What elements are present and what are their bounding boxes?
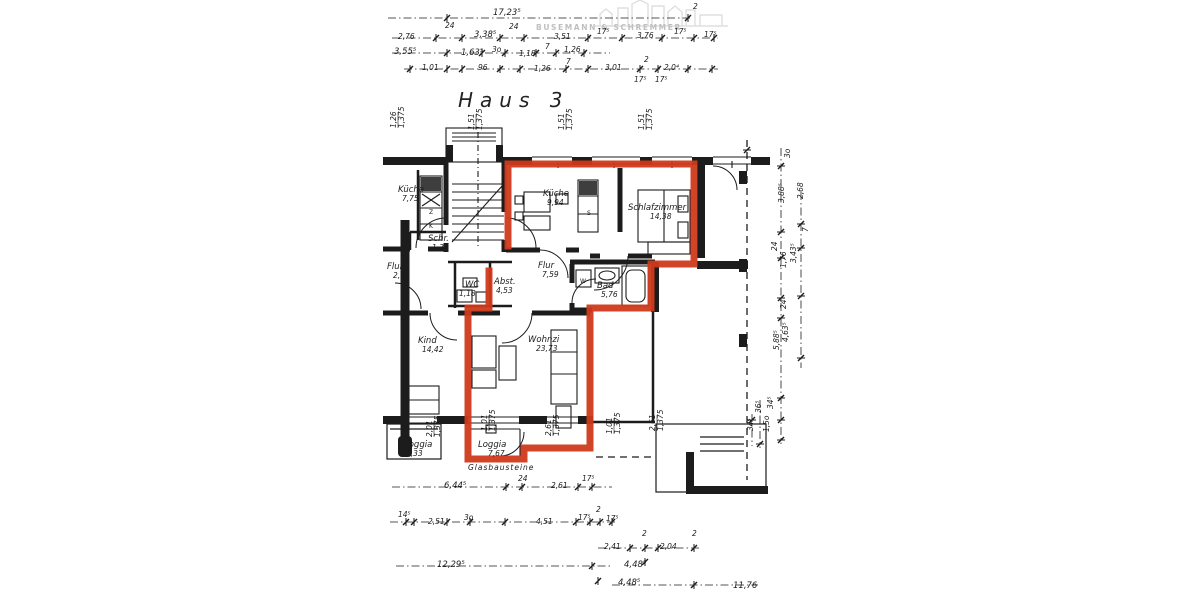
dim-label: 11,76: [733, 581, 758, 591]
dim-label: 4,48⁵: [624, 560, 647, 570]
dim-label: 5,88⁵: [772, 330, 781, 350]
dimensions-windows: 1,261,3751,511,3751,511,3751,511,3752,01…: [389, 106, 665, 437]
room-area-label: 14,38: [650, 212, 672, 221]
dim-label: 34⁵: [766, 396, 775, 409]
bedroom-fixtures: [638, 190, 690, 254]
room-area-label: 14,42: [422, 345, 444, 354]
dim-label: 4,63⁵: [781, 322, 790, 342]
window-dim-pair: 1,511,375: [637, 108, 654, 130]
dim-tick: [459, 65, 465, 73]
dim-label: 2,51: [428, 517, 445, 526]
dim-label: 14⁵: [398, 510, 411, 519]
dim-label: 6,44⁵: [444, 481, 467, 491]
room-area-label: 7,67: [488, 449, 505, 458]
floor-plan-page: BUSEMANN & SCHREMMER: [0, 0, 1200, 600]
plan-title: Haus 3: [458, 88, 569, 112]
handwritten-note: Glasbausteine: [468, 463, 534, 472]
dim-label: 17,23⁵: [493, 8, 521, 18]
dim-label: 1,26: [534, 64, 551, 73]
dim-tick: [777, 437, 785, 443]
room-area-label: 9,94: [547, 198, 564, 207]
dim-label: 7: [801, 227, 810, 232]
dim-label: 17⁵: [674, 27, 687, 36]
window-dim-pair: 2,011,375: [425, 415, 442, 437]
dimension-chain-lines: [388, 18, 801, 585]
dim-label: 24: [779, 299, 788, 309]
dim-label: 7: [566, 57, 571, 66]
dim-label: 1,18: [519, 49, 536, 58]
dim-tick: [619, 34, 625, 42]
dim-label: 2,76: [398, 32, 415, 41]
dim-label: 3o: [783, 148, 792, 158]
room-area-label: 1,18: [459, 289, 476, 298]
dim-label: 2: [692, 529, 697, 538]
dim-label: 2,0⁴: [664, 63, 679, 72]
window-dim-pair: 2,611,375: [648, 409, 665, 431]
dim-label: 3,01: [605, 63, 622, 72]
window-dim-bottom: 1,375: [552, 414, 561, 436]
window-dim-bottom: 1,375: [656, 409, 665, 431]
dim-label: 12,29⁵: [437, 560, 465, 570]
dim-label: 2: [644, 55, 649, 64]
dim-label: 24: [770, 241, 779, 251]
dim-tick: [797, 293, 805, 299]
dim-label: 17⁵: [597, 27, 610, 36]
window-dim-pair: 1,261,375: [389, 106, 406, 128]
dim-label: 4,48⁵: [618, 578, 641, 588]
dim-label: 36⁵: [754, 400, 763, 413]
dim-tick: [756, 441, 764, 447]
dim-label: 2,41: [604, 542, 621, 551]
dim-label: 1,01: [422, 63, 439, 72]
dim-tick: [444, 65, 450, 73]
child-room-fixtures: [409, 386, 439, 414]
dim-label: 2,04: [660, 542, 677, 551]
fixture-letter: Z: [429, 209, 433, 216]
dim-tick: [444, 518, 450, 526]
room-area-label: 23,73: [536, 344, 558, 353]
window-dim-bottom: 1,375: [397, 106, 406, 128]
dim-label: 3o: [492, 45, 502, 54]
dim-label: 24: [518, 474, 528, 483]
staircase: [446, 128, 504, 246]
handwritten-notes: Glasbausteine: [468, 463, 534, 472]
fixture-letter: W: [580, 278, 586, 285]
dim-label: 2: [596, 505, 601, 514]
dim-label: 2: [693, 2, 698, 11]
window-dim-bottom: 1,375: [645, 108, 654, 130]
dim-label: 3,76: [637, 31, 654, 40]
dim-label: 2: [642, 529, 647, 538]
loggia-right-neighbor: [656, 424, 766, 492]
dim-label: 7: [545, 42, 550, 51]
dim-label: 3,43⁵: [789, 243, 798, 263]
dim-label: 17⁵: [582, 474, 595, 483]
room-area-label: 4,53: [496, 286, 513, 295]
window-dim-pair: 1,011,375: [480, 409, 497, 431]
window-dim-bottom: 1,375: [433, 415, 442, 437]
dim-label: 17⁵: [578, 513, 591, 522]
room-area-label: 2,64: [393, 271, 410, 280]
room-area-label: 5,76: [601, 290, 618, 299]
dim-label: 3,55⁵: [394, 47, 417, 57]
dim-label: 3,51: [554, 32, 571, 41]
dimensions-right: 3o2,683,88⁵7243,43⁵1,76244,63⁵5,88⁵34⁵36…: [746, 148, 810, 432]
room-area-label: 7,59: [542, 270, 559, 279]
dim-label: 96: [478, 63, 488, 72]
dim-label: 3,88⁵: [777, 183, 786, 203]
dim-label: 1,63⁵: [461, 48, 484, 58]
dim-label: 4,51: [536, 517, 553, 526]
room-area-label: 1,33: [432, 243, 449, 252]
fixture-letter: S: [587, 210, 591, 217]
dim-label: 2,61: [551, 481, 568, 490]
window-dim-bottom: 1,375: [488, 409, 497, 431]
dim-label: 1,5o: [762, 415, 771, 432]
dim-label: 24: [509, 22, 519, 31]
dim-label: 17⁵: [655, 75, 668, 84]
dim-label: 2,68: [796, 182, 805, 199]
window-dim-pair: 1,011,375: [605, 412, 622, 434]
room-area-label: 7,75: [402, 194, 419, 203]
window-dim-bottom: 1,375: [613, 412, 622, 434]
floor-plan-scan: BUSEMANN & SCHREMMER: [0, 0, 1200, 600]
dim-label: 24: [445, 21, 455, 30]
dim-tick: [433, 34, 439, 42]
dim-tick: [595, 577, 601, 585]
dim-label: 17⁵: [634, 75, 647, 84]
dim-tick: [797, 355, 805, 361]
room-area-label: 3,33: [406, 449, 423, 458]
dim-label: 1,26: [564, 45, 581, 54]
dim-label: 3,38⁵: [474, 30, 497, 40]
